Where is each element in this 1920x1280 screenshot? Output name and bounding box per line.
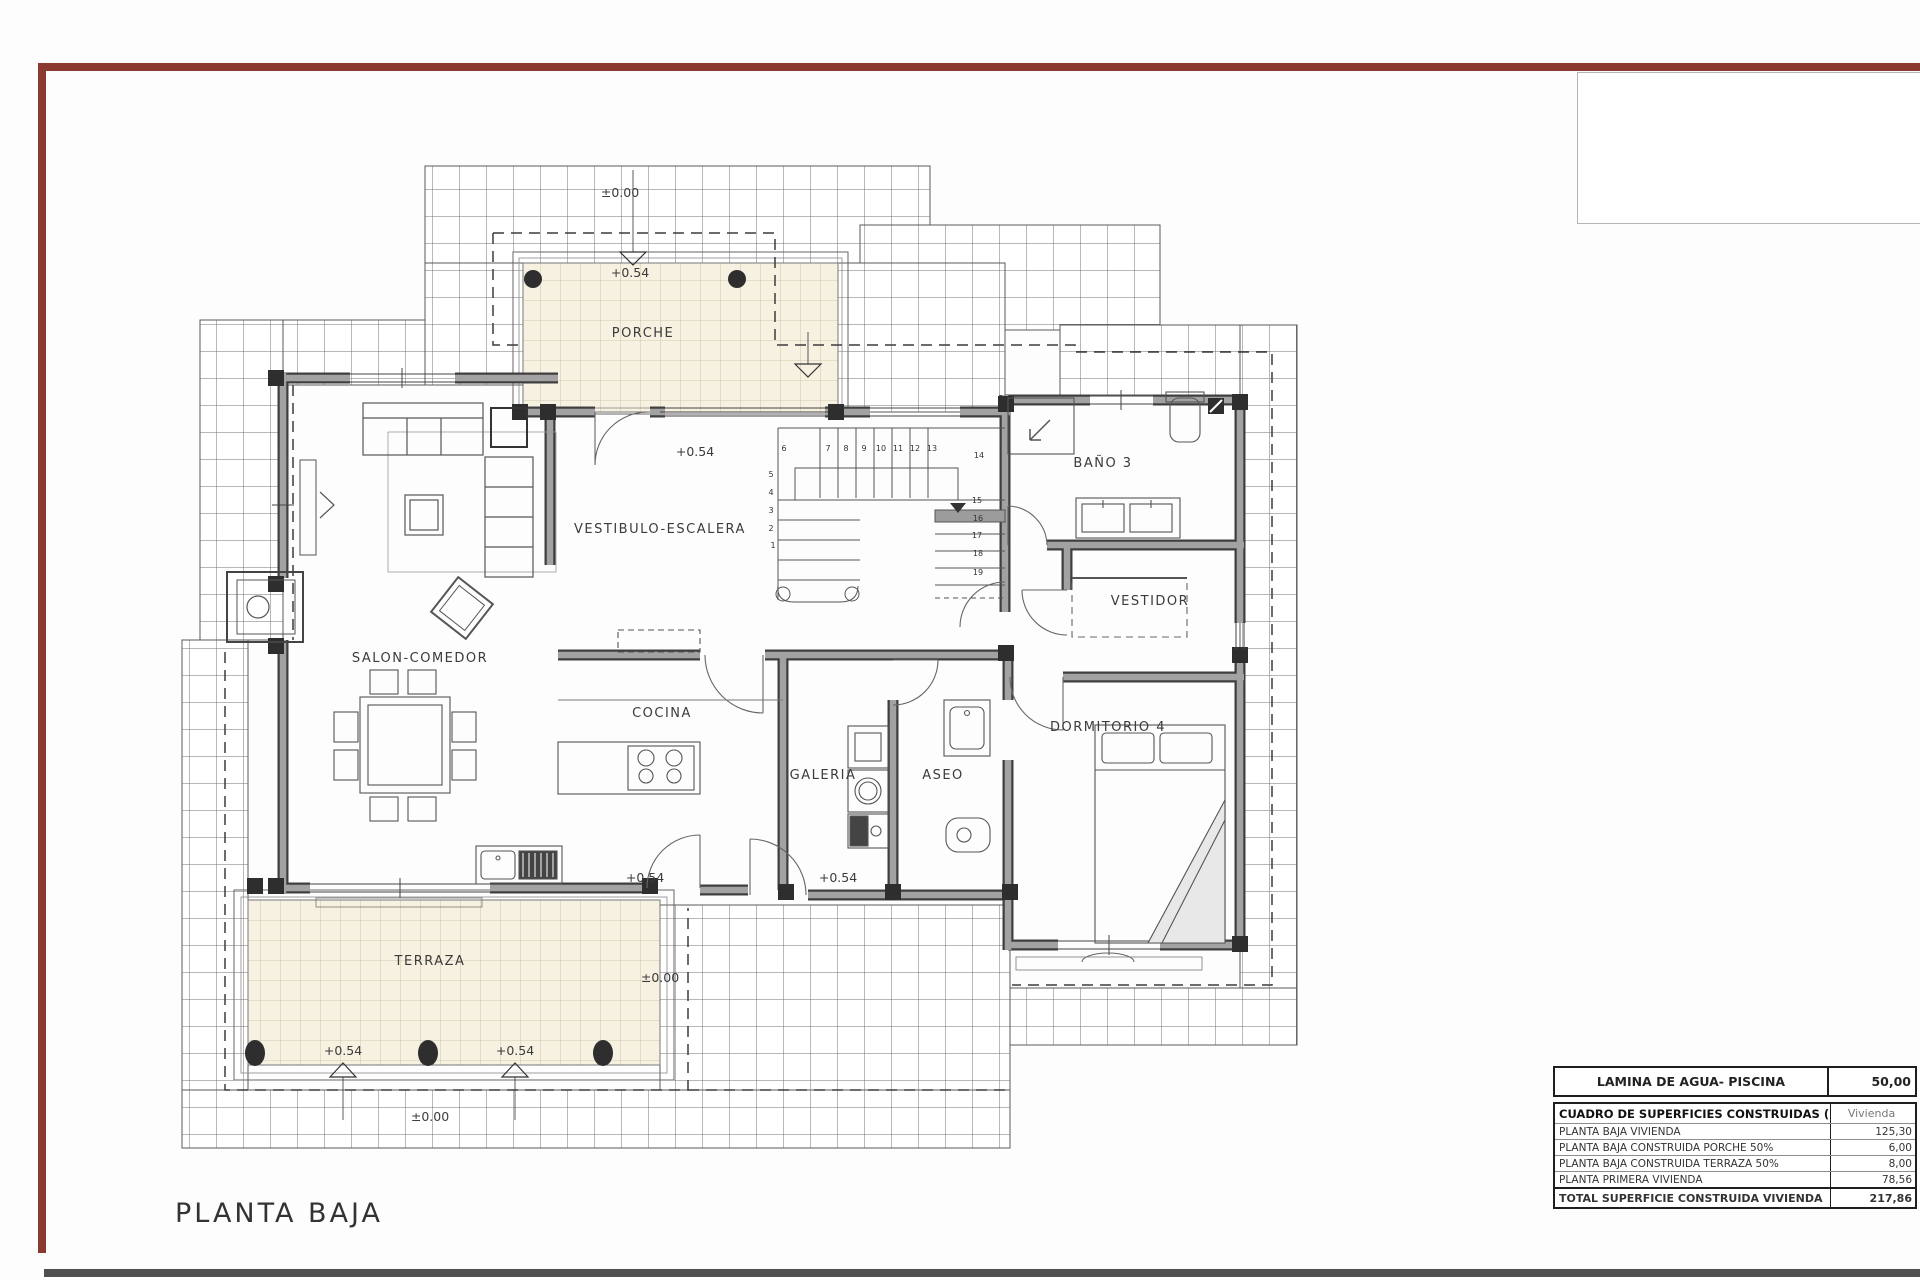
furniture-kitchen [476,630,783,884]
level-mark: +0.54 [324,1043,362,1058]
room-label-porche: PORCHE [612,326,675,341]
room-label-vestibulo: VESTIBULO-ESCALERA [574,522,746,537]
level-mark: +0.54 [496,1043,534,1058]
pool-area-table: LAMINA DE AGUA- PISCINA 50,00 [1553,1066,1917,1097]
stair-number: 15 [972,496,982,505]
row-value: 6,00 [1831,1140,1915,1155]
surfaces-header-value: Vivienda [1831,1104,1915,1123]
surfaces-table: CUADRO DE SUPERFICIES CONSTRUIDAS (m2) V… [1553,1102,1917,1209]
row-label: PLANTA PRIMERA VIVIENDA [1555,1172,1831,1187]
level-mark: ±0.00 [641,970,679,985]
stair-number: 18 [973,549,983,558]
stair-number: 3 [768,506,773,515]
pool-area-label: LAMINA DE AGUA- PISCINA [1555,1068,1829,1095]
row-label: PLANTA BAJA CONSTRUIDA PORCHE 50% [1555,1140,1831,1155]
table-row: PLANTA BAJA CONSTRUIDA PORCHE 50% 6,00 [1555,1139,1915,1155]
stair-number: 19 [973,568,983,577]
title-block-box [1577,72,1920,224]
row-value: 8,00 [1831,1156,1915,1171]
sheet-border-bottom [44,1269,1920,1277]
room-label-cocina: COCINA [632,706,692,721]
room-labels: PORCHE VESTIBULO-ESCALERA BAÑO 3 VESTIDO… [352,326,1189,969]
stair-number: 4 [768,488,773,497]
total-value: 217,86 [1831,1189,1915,1207]
room-label-bano3: BAÑO 3 [1073,455,1132,471]
stair-number: 2 [768,524,773,533]
row-label: PLANTA BAJA VIVIENDA [1555,1124,1831,1139]
stair-number: 7 [825,444,830,453]
stair-number: 1 [770,541,775,550]
row-value: 78,56 [1831,1172,1915,1187]
stair-number: 9 [861,444,866,453]
stair-number: 6 [781,444,786,453]
staircase [776,428,1005,602]
level-mark: ±0.00 [411,1109,449,1124]
sheet-border-left [38,63,46,1253]
table-row: PLANTA BAJA CONSTRUIDA TERRAZA 50% 8,00 [1555,1155,1915,1171]
room-label-dormitorio4: DORMITORIO 4 [1050,720,1166,735]
page-title: PLANTA BAJA [175,1198,383,1229]
room-label-terraza: TERRAZA [394,954,466,969]
room-label-galeria: GALERIA [790,768,857,783]
table-row: PLANTA BAJA VIVIENDA 125,30 [1555,1123,1915,1139]
surfaces-header-row: CUADRO DE SUPERFICIES CONSTRUIDAS (m2) V… [1555,1104,1915,1123]
stair-number: 17 [972,531,982,540]
sheet-border-top [38,63,1920,71]
furniture-bath-dorm [1008,392,1225,943]
room-label-vestidor: VESTIDOR [1111,594,1189,609]
porch-floor [513,252,848,414]
level-mark: +0.54 [819,870,857,885]
total-label: TOTAL SUPERFICIE CONSTRUIDA VIVIENDA [1555,1189,1831,1207]
furniture-dining [334,670,476,821]
level-mark: ±0.00 [601,185,639,200]
stair-number: 11 [893,444,903,453]
stair-number: 8 [843,444,848,453]
surfaces-total-row: TOTAL SUPERFICIE CONSTRUIDA VIVIENDA 217… [1555,1187,1915,1207]
table-row: PLANTA PRIMERA VIVIENDA 78,56 [1555,1171,1915,1187]
row-value: 125,30 [1831,1124,1915,1139]
stair-number: 12 [910,444,920,453]
stair-number: 10 [876,444,886,453]
stair-number: 13 [927,444,937,453]
level-mark: +0.54 [611,265,649,280]
room-label-aseo: ASEO [922,768,964,783]
stair-number: 16 [973,514,983,523]
pool-area-value: 50,00 [1829,1068,1915,1095]
furniture-galeria-aseo [848,700,990,852]
level-mark: +0.54 [676,444,714,459]
room-label-salon-comedor: SALON-COMEDOR [352,651,488,666]
row-label: PLANTA BAJA CONSTRUIDA TERRAZA 50% [1555,1156,1831,1171]
level-mark: +0.54 [626,870,664,885]
surfaces-header-label: CUADRO DE SUPERFICIES CONSTRUIDAS (m2) [1555,1104,1831,1123]
stair-number: 14 [974,451,984,460]
stair-number: 5 [768,470,773,479]
drawing-sheet: PORCHE VESTIBULO-ESCALERA BAÑO 3 VESTIDO… [0,0,1920,1280]
